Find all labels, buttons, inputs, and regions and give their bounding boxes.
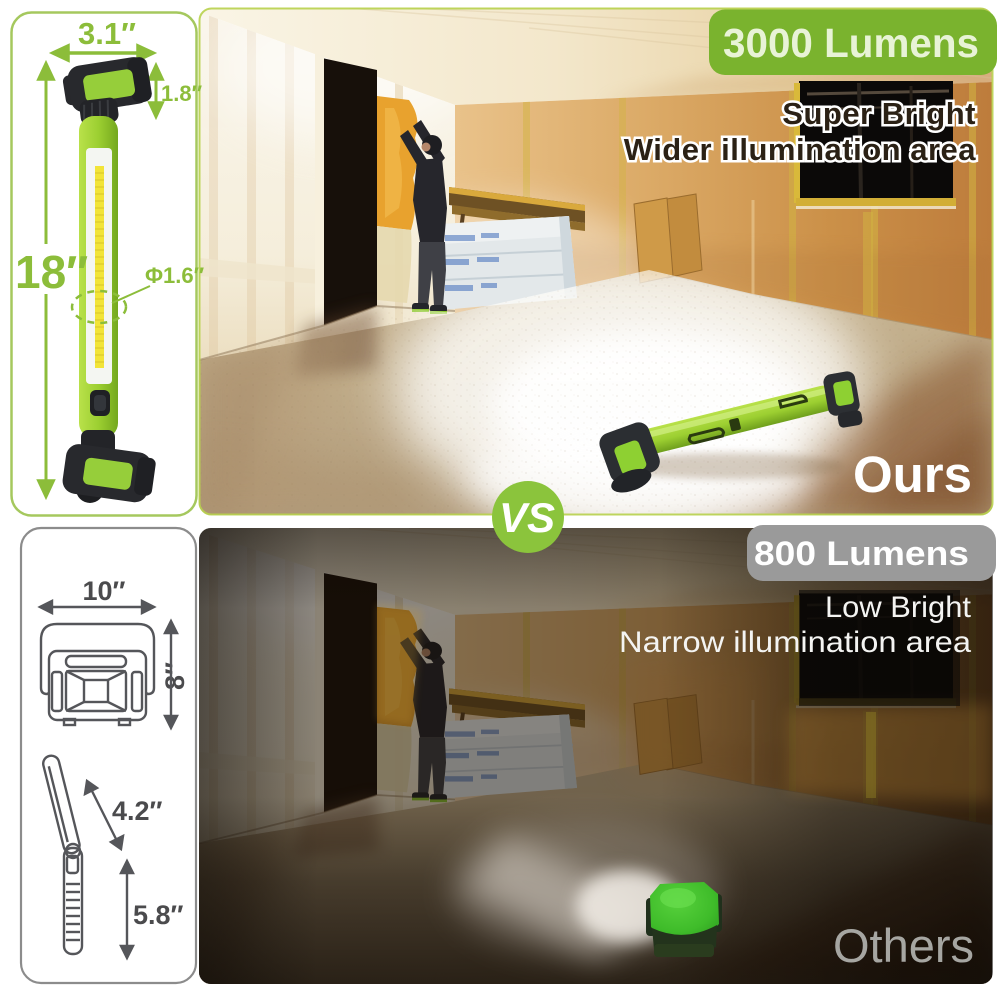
svg-text:Narrow illumination area: Narrow illumination area bbox=[619, 626, 971, 659]
svg-text:Super Bright: Super Bright bbox=[782, 96, 976, 131]
svg-text:Others: Others bbox=[833, 919, 974, 972]
svg-text:800 Lumens: 800 Lumens bbox=[754, 535, 969, 573]
svg-text:8″: 8″ bbox=[160, 662, 190, 690]
svg-text:3000 Lumens: 3000 Lumens bbox=[723, 20, 979, 66]
svg-text:Φ1.6″: Φ1.6″ bbox=[145, 263, 205, 288]
svg-text:3.1″: 3.1″ bbox=[78, 16, 136, 51]
svg-text:Wider illumination area: Wider illumination area bbox=[624, 132, 977, 167]
svg-text:4.2″: 4.2″ bbox=[112, 796, 163, 826]
svg-text:1.8″: 1.8″ bbox=[161, 81, 203, 106]
svg-text:18″: 18″ bbox=[15, 246, 88, 298]
svg-text:VS: VS bbox=[499, 494, 555, 541]
svg-text:10″: 10″ bbox=[83, 576, 126, 606]
svg-text:5.8″: 5.8″ bbox=[133, 900, 184, 930]
svg-text:Ours: Ours bbox=[853, 446, 972, 503]
svg-text:Low Bright: Low Bright bbox=[825, 591, 972, 624]
